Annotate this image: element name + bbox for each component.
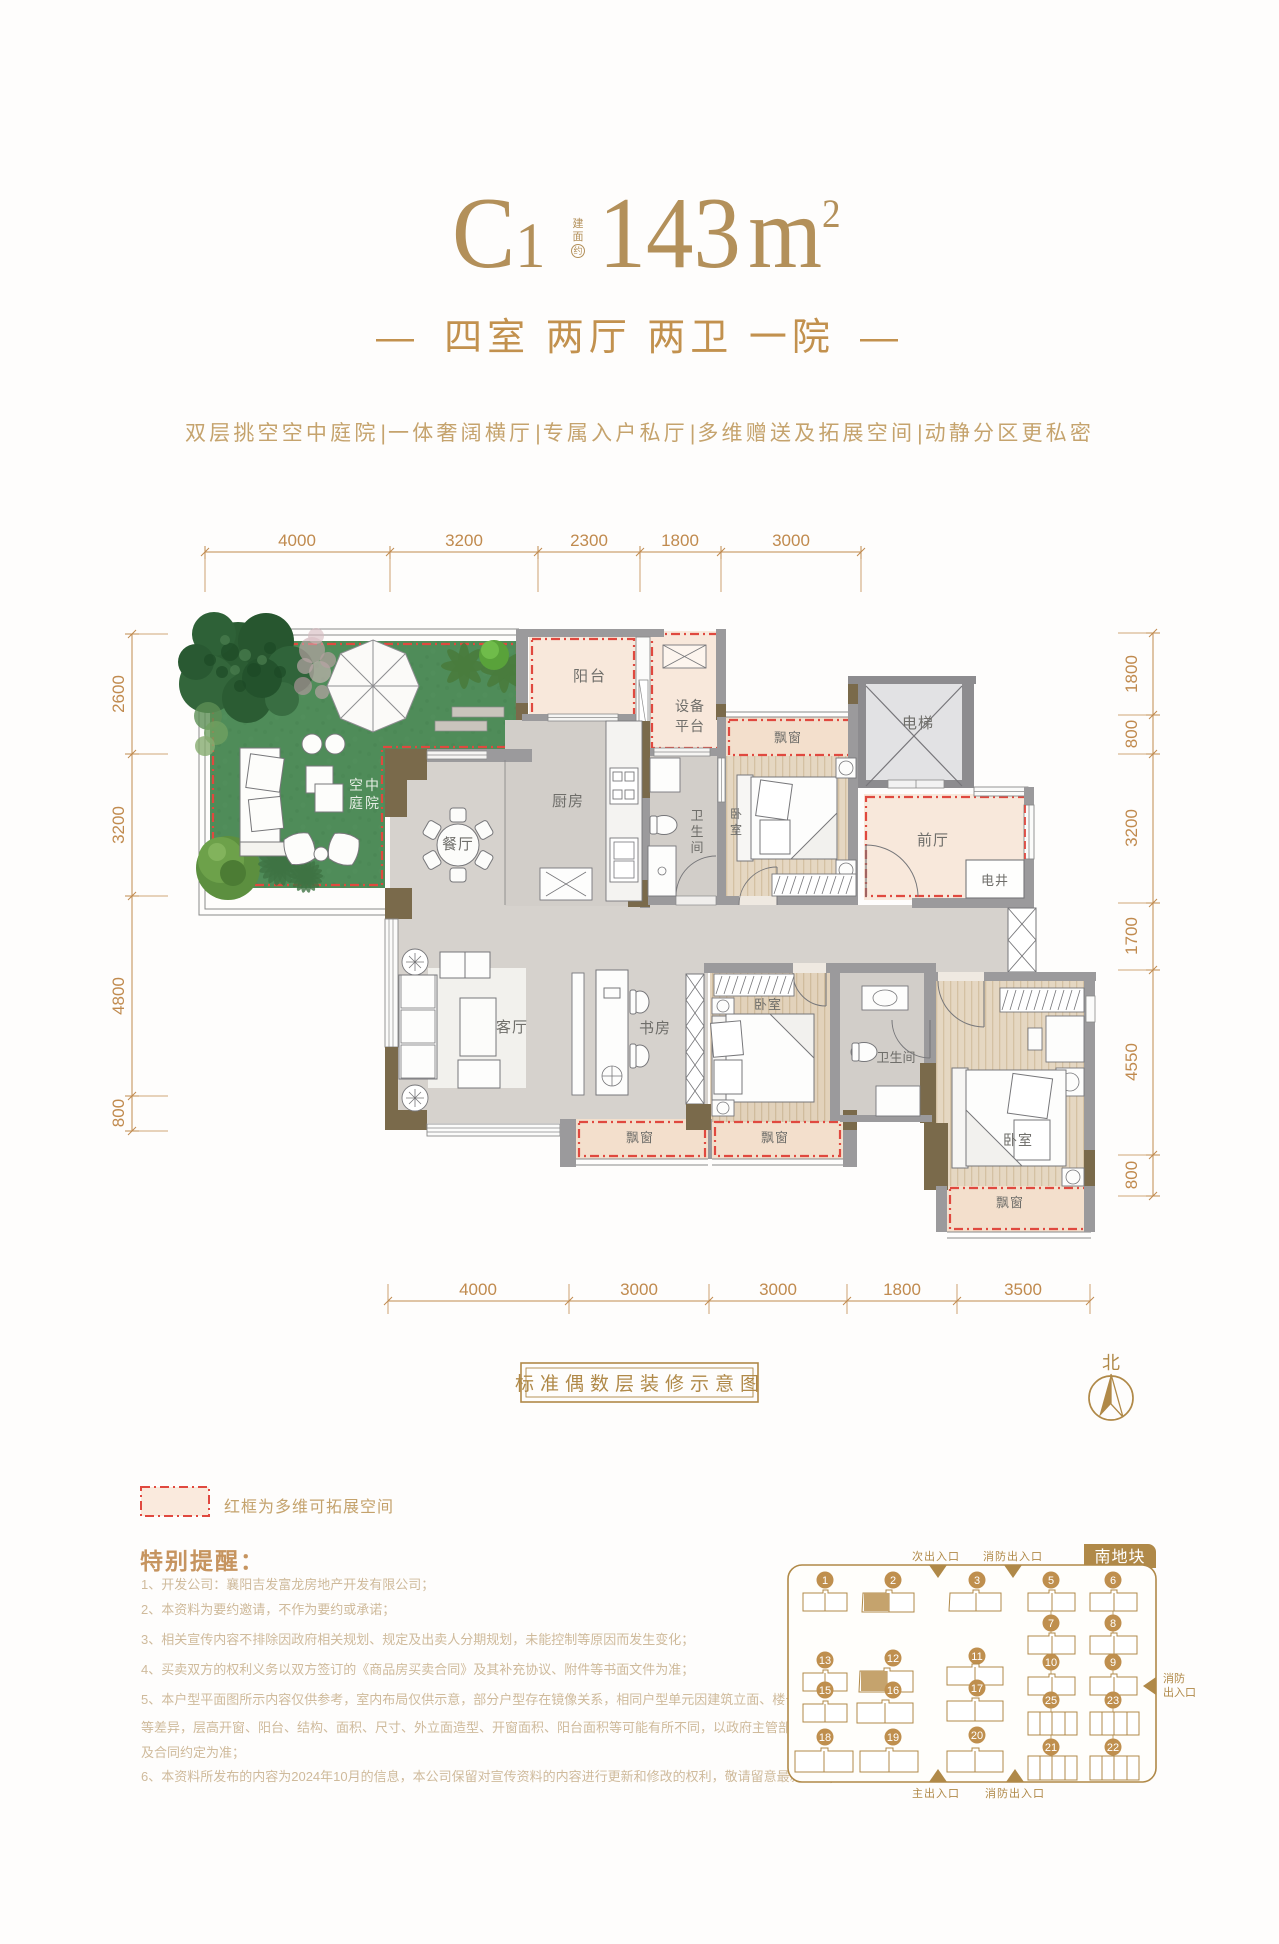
svg-text:5: 5	[1048, 1575, 1054, 1587]
svg-text:7: 7	[1048, 1618, 1054, 1630]
svg-text:3500: 3500	[1004, 1280, 1042, 1299]
svg-text:10: 10	[1045, 1657, 1057, 1669]
svg-text:12: 12	[887, 1653, 899, 1665]
svg-text:4000: 4000	[459, 1280, 497, 1299]
svg-text:17: 17	[971, 1683, 983, 1695]
svg-text:主出入口: 主出入口	[912, 1786, 960, 1800]
svg-text:生: 生	[690, 824, 703, 839]
svg-text:11: 11	[971, 1651, 982, 1663]
svg-text:2: 2	[890, 1575, 896, 1587]
svg-text:庭院: 庭院	[349, 795, 381, 811]
svg-text:4800: 4800	[109, 977, 128, 1015]
svg-text:1800: 1800	[883, 1280, 921, 1299]
svg-text:餐厅: 餐厅	[442, 836, 474, 853]
svg-text:电梯: 电梯	[902, 715, 934, 732]
svg-text:2600: 2600	[109, 675, 128, 713]
svg-text:室: 室	[730, 822, 742, 837]
svg-text:13: 13	[819, 1655, 831, 1667]
svg-text:前厅: 前厅	[917, 832, 949, 849]
svg-text:9: 9	[1110, 1657, 1116, 1669]
svg-text:飘窗: 飘窗	[774, 730, 802, 745]
svg-text:1: 1	[822, 1575, 828, 1587]
svg-text:3200: 3200	[109, 806, 128, 844]
svg-text:南地块: 南地块	[1094, 1548, 1145, 1566]
svg-text:1800: 1800	[1122, 655, 1141, 693]
svg-text:3: 3	[974, 1575, 980, 1587]
svg-text:16: 16	[887, 1685, 899, 1697]
svg-text:北: 北	[1102, 1353, 1120, 1373]
svg-text:800: 800	[1122, 720, 1141, 748]
svg-text:客厅: 客厅	[496, 1019, 528, 1036]
svg-text:3200: 3200	[1122, 809, 1141, 847]
svg-text:3200: 3200	[445, 531, 483, 550]
svg-text:卧室: 卧室	[754, 997, 782, 1012]
svg-text:间: 间	[690, 840, 703, 855]
svg-text:次出入口: 次出入口	[912, 1549, 960, 1563]
svg-text:3000: 3000	[772, 531, 810, 550]
svg-text:出入口: 出入口	[1163, 1685, 1196, 1699]
svg-text:1700: 1700	[1122, 917, 1141, 955]
svg-text:厨房: 厨房	[552, 793, 584, 810]
svg-text:卧: 卧	[730, 807, 742, 821]
svg-text:25: 25	[1045, 1695, 1057, 1707]
svg-text:卫: 卫	[690, 808, 703, 823]
svg-text:6: 6	[1110, 1575, 1116, 1587]
svg-text:21: 21	[1045, 1742, 1057, 1754]
svg-text:电井: 电井	[981, 873, 1009, 888]
svg-text:空中: 空中	[349, 777, 381, 793]
svg-text:800: 800	[1122, 1161, 1141, 1189]
svg-text:书房: 书房	[639, 1020, 671, 1037]
svg-text:3000: 3000	[620, 1280, 658, 1299]
svg-text:19: 19	[887, 1732, 899, 1744]
svg-text:20: 20	[971, 1730, 983, 1742]
svg-text:2300: 2300	[570, 531, 608, 550]
svg-text:1800: 1800	[661, 531, 699, 550]
svg-text:飘窗: 飘窗	[996, 1195, 1024, 1210]
svg-text:23: 23	[1107, 1695, 1119, 1707]
svg-text:设备: 设备	[675, 698, 705, 714]
svg-text:8: 8	[1110, 1618, 1116, 1630]
svg-text:阳台: 阳台	[573, 668, 607, 685]
svg-text:消防出入口: 消防出入口	[985, 1786, 1045, 1800]
svg-text:消防: 消防	[1163, 1671, 1185, 1685]
svg-text:飘窗: 飘窗	[761, 1130, 789, 1145]
svg-text:飘窗: 飘窗	[626, 1130, 654, 1145]
svg-text:消防出入口: 消防出入口	[983, 1549, 1043, 1563]
svg-text:4000: 4000	[278, 531, 316, 550]
svg-text:标准偶数层装修示意图: 标准偶数层装修示意图	[515, 1373, 765, 1395]
svg-text:22: 22	[1107, 1742, 1119, 1754]
svg-text:卫生间: 卫生间	[876, 1050, 915, 1065]
svg-text:4550: 4550	[1122, 1043, 1141, 1081]
svg-text:800: 800	[109, 1099, 128, 1127]
svg-text:卧室: 卧室	[1003, 1132, 1033, 1148]
svg-text:15: 15	[819, 1685, 831, 1697]
svg-text:18: 18	[819, 1732, 831, 1744]
svg-text:3000: 3000	[759, 1280, 797, 1299]
svg-text:平台: 平台	[675, 718, 705, 734]
